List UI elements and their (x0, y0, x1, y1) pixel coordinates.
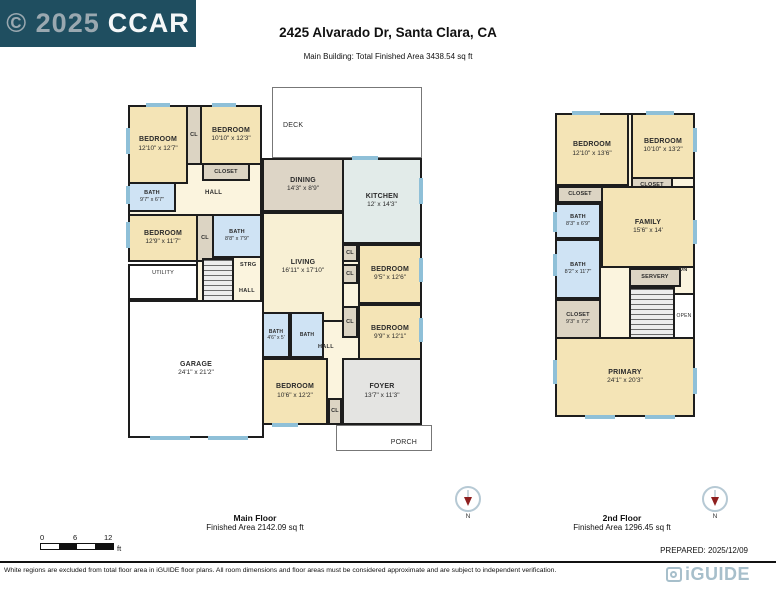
room-bath-4: BATH (290, 312, 324, 358)
page-title: 2425 Alvarado Dr, Santa Clara, CA (0, 25, 776, 40)
room-label: FOYER (369, 383, 394, 391)
room-label: PORCH (391, 439, 417, 447)
floor-title: 2nd Floor (522, 513, 722, 523)
stairs-second-floor (629, 287, 675, 341)
room-label: CL (346, 271, 354, 278)
window-marker (419, 178, 423, 204)
room-dims: 16'11" x 17'10" (282, 267, 324, 275)
room-closet-cl3: CL (342, 244, 358, 262)
room-bedroom-3: BEDROOM 12'9" x 11'7" (128, 214, 198, 262)
room-dims: 24'1" x 20'3" (607, 377, 643, 385)
room-label: BATH (229, 229, 245, 236)
room-living: LIVING 16'11" x 17'10" (262, 212, 344, 322)
room-bedroom-1: BEDROOM 12'10" x 12'7" (128, 105, 188, 184)
room-label: BEDROOM (371, 325, 409, 333)
room-foyer: FOYER 13'7" x 11'3" (342, 358, 422, 425)
room-porch: PORCH (336, 425, 432, 451)
scale-ticks: 0 6 12 (40, 533, 140, 542)
room-label: UTILITY (152, 270, 174, 277)
window-marker (352, 156, 378, 160)
room-utility: UTILITY (128, 264, 198, 300)
compass-north-label: N (455, 513, 481, 520)
room-label: PRIMARY (608, 369, 641, 377)
room-label: SERVERY (641, 274, 668, 281)
window-marker (126, 222, 130, 248)
room-dims: 13'7" x 11'3" (364, 392, 399, 400)
room-bedroom-4: BEDROOM 9'5" x 12'6" (358, 244, 422, 304)
room-label: DECK (283, 122, 303, 130)
scale-tick-0: 0 (40, 533, 44, 542)
room-label: BATH (300, 332, 314, 338)
room-closet-1: CLOSET (202, 163, 250, 181)
room-dims: 9'3" x 7'2" (566, 319, 590, 326)
room-dims: 8'2" x 11'7" (565, 269, 592, 276)
room-closet-a: CLOSET (557, 186, 603, 203)
window-marker (646, 111, 674, 115)
room-label: OPEN (677, 313, 692, 319)
room-label: BEDROOM (644, 138, 682, 146)
room-dims: 10'6" x 12'2" (277, 392, 313, 400)
room-dims: 9'7" x 6'7" (140, 197, 164, 204)
window-marker (693, 368, 697, 394)
room-bedroom-6: BEDROOM 10'6" x 12'2" (262, 358, 328, 425)
room-label: BEDROOM (212, 127, 250, 135)
room-dims: 10'10" x 13'2" (643, 146, 682, 154)
scale-bar: 0 6 12 ft (40, 533, 140, 555)
room-bath-b: BATH 8'2" x 11'7" (555, 239, 601, 299)
room-dims: 8'3" x 6'9" (566, 221, 590, 228)
window-marker (693, 220, 697, 244)
room-bedroom-2: BEDROOM 10'10" x 12'3" (200, 105, 262, 165)
room-label: CL (201, 235, 209, 242)
window-marker (553, 360, 557, 384)
room-bedroom-a: BEDROOM 12'10" x 13'6" (555, 113, 629, 186)
room-dims: 9'5" x 12'6" (374, 274, 406, 282)
hall-label-3: HALL (318, 344, 334, 350)
scale-bar-segments (40, 543, 114, 550)
window-marker (146, 103, 170, 107)
room-bath-1: BATH 9'7" x 6'7" (128, 182, 176, 212)
room-label: CL (346, 250, 354, 257)
window-marker (126, 186, 130, 204)
room-bath-3: BATH 4'6" x 5' (262, 312, 290, 358)
room-label: BEDROOM (139, 136, 177, 144)
footer-disclaimer: White regions are excluded from total fl… (4, 567, 624, 574)
window-marker (572, 111, 600, 115)
room-dims: 12'9" x 11'7" (145, 238, 180, 246)
strg-label: STRG (240, 262, 256, 268)
room-dims: 4'6" x 5' (267, 335, 284, 341)
room-dining: DINING 14'3" x 8'9" (262, 158, 344, 212)
window-marker (419, 318, 423, 342)
room-label: BATH (570, 214, 586, 221)
window-marker (150, 436, 190, 440)
room-label: DINING (290, 177, 316, 185)
room-label: CL (346, 319, 354, 326)
scale-segment (77, 544, 95, 549)
room-label: BEDROOM (276, 383, 314, 391)
room-label: CL (331, 408, 339, 415)
scale-tick-12: 12 (104, 533, 112, 542)
room-dims: 10'10" x 12'3" (211, 135, 250, 143)
scale-segment (59, 544, 77, 549)
room-bath-a: BATH 8'3" x 6'9" (555, 203, 601, 239)
iguide-lens-dot (670, 571, 677, 578)
compass-north-label: N (702, 513, 728, 520)
room-servery: SERVERY (629, 268, 681, 287)
room-label: GARAGE (180, 361, 212, 369)
page-subtitle: Main Building: Total Finished Area 3438.… (0, 52, 776, 61)
window-marker (212, 103, 236, 107)
floor-title: Main Floor (155, 513, 355, 523)
second-floor-caption: 2nd Floor Finished Area 1296.45 sq ft (522, 513, 722, 532)
room-dims: 12'10" x 13'6" (572, 150, 611, 158)
room-deck: DECK (272, 87, 422, 158)
footer-divider (0, 561, 776, 563)
room-label: FAMILY (635, 219, 661, 227)
hall-label-1: HALL (205, 190, 222, 196)
room-primary: PRIMARY 24'1" x 20'3" (555, 337, 695, 417)
room-closet-c: CLOSET 9'3" x 7'2" (555, 299, 601, 339)
compass-circle (702, 486, 728, 512)
scale-segment (95, 544, 113, 549)
window-marker (208, 436, 248, 440)
scale-segment (41, 544, 59, 549)
floor-area: Finished Area 1296.45 sq ft (522, 523, 722, 532)
compass-icon: N (455, 486, 481, 520)
scale-tick-6: 6 (73, 533, 77, 542)
stairs-main-floor (202, 258, 234, 302)
iguide-logo: iGUIDE (666, 564, 750, 585)
room-label: CL (190, 132, 198, 139)
window-marker (645, 415, 675, 419)
main-floor-caption: Main Floor Finished Area 2142.09 sq ft (155, 513, 355, 532)
room-label: CLOSET (568, 191, 592, 198)
room-dims: 15'6" x 14' (633, 227, 663, 235)
window-marker (126, 128, 130, 154)
window-marker (585, 415, 615, 419)
room-dims: 8'8" x 7'9" (225, 236, 249, 243)
room-dims: 9'9" x 12'1" (374, 333, 406, 341)
open-to-below: OPEN (673, 293, 695, 339)
dn-label: DN (679, 267, 688, 273)
compass-needle (711, 497, 719, 506)
room-label: KITCHEN (366, 193, 399, 201)
room-label: BEDROOM (371, 266, 409, 274)
hall-label-2: HALL (239, 288, 255, 294)
floor-area: Finished Area 2142.09 sq ft (155, 523, 355, 532)
room-label: BEDROOM (144, 230, 182, 238)
scale-unit: ft (117, 544, 121, 553)
room-bedroom-b: BEDROOM 10'10" x 13'2" (631, 113, 695, 179)
room-closet-cl6: CL (328, 398, 342, 425)
floorplan-page: © 2025 CCAR 2425 Alvarado Dr, Santa Clar… (0, 0, 776, 600)
room-bedroom-5: BEDROOM 9'9" x 12'1" (358, 304, 422, 362)
room-dims: 24'1" x 21'2" (178, 369, 214, 377)
room-label: CLOSET (214, 169, 238, 176)
room-garage: GARAGE 24'1" x 21'2" (128, 300, 264, 438)
room-dims: 14'3" x 8'9" (287, 185, 319, 193)
room-label: BEDROOM (573, 141, 611, 149)
iguide-camera-icon (666, 567, 682, 582)
room-label: CLOSET (566, 312, 590, 319)
window-marker (553, 212, 557, 232)
room-closet-cl5: CL (342, 306, 358, 338)
room-dims: 12' x 14'3" (367, 201, 397, 209)
room-bath-2: BATH 8'8" x 7'9" (212, 214, 262, 258)
room-family: FAMILY 15'6" x 14' (601, 186, 695, 268)
room-label: BATH (144, 190, 160, 197)
compass-needle (464, 497, 472, 506)
room-label: BATH (570, 262, 586, 269)
compass-circle (455, 486, 481, 512)
compass-icon: N (702, 486, 728, 520)
window-marker (553, 254, 557, 276)
room-closet-cl4: CL (342, 264, 358, 284)
prepared-date: PREPARED: 2025/12/09 (660, 546, 748, 555)
room-kitchen: KITCHEN 12' x 14'3" (342, 158, 422, 244)
iguide-wordmark: iGUIDE (685, 564, 750, 585)
room-label: LIVING (291, 259, 316, 267)
window-marker (693, 128, 697, 152)
window-marker (272, 423, 298, 427)
room-dims: 12'10" x 12'7" (138, 145, 177, 153)
window-marker (419, 258, 423, 282)
